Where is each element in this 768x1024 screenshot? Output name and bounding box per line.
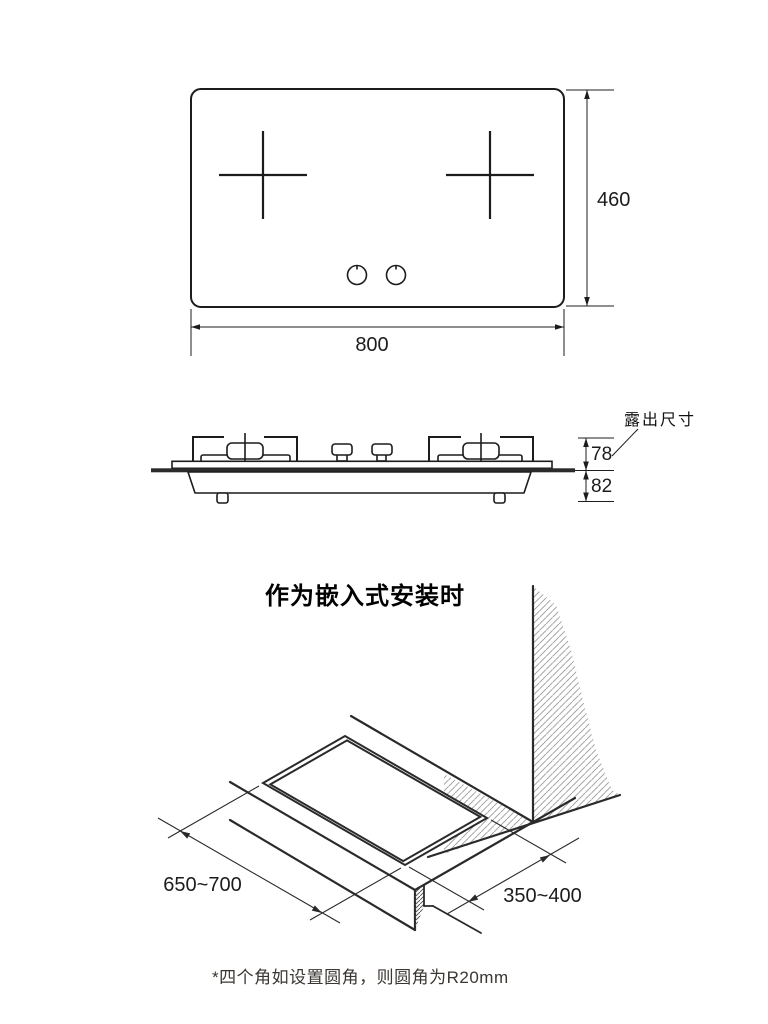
right-foot [494,493,505,503]
cooktop-panel-outline [191,89,564,307]
top-view-drawing [191,89,614,356]
exposed-size-label: 露出尺寸 [624,406,696,430]
side-view-drawing [151,429,638,503]
dimension-drawing-canvas [0,0,768,1024]
knob-profiles [332,444,392,461]
left-foot [217,493,228,503]
cutout-depth-dimension-label: 650~700 [150,874,255,897]
corner-radius-note: *四个角如设置圆角，则圆角为R20mm [212,963,509,988]
cooktop-body-profile [188,472,531,493]
top-height-dimension-label: 460 [597,189,630,212]
below-counter-dimension-label: 82 [591,476,612,498]
cooktop-dimension-sheet: 800 460 露出尺寸 78 82 作为嵌入式安装时 650~700 350~… [0,0,768,1024]
above-counter-dimension-label: 78 [591,444,612,466]
section-cut-strip [415,885,424,930]
exposed-leader-line [612,429,638,456]
wall-hatch-face [533,586,620,822]
top-width-dimension-label: 800 [350,334,394,357]
glass-top-slab [172,461,552,468]
install-section-title: 作为嵌入式安装时 [125,576,605,611]
cutout-width-dimension-label: 350~400 [490,885,595,908]
